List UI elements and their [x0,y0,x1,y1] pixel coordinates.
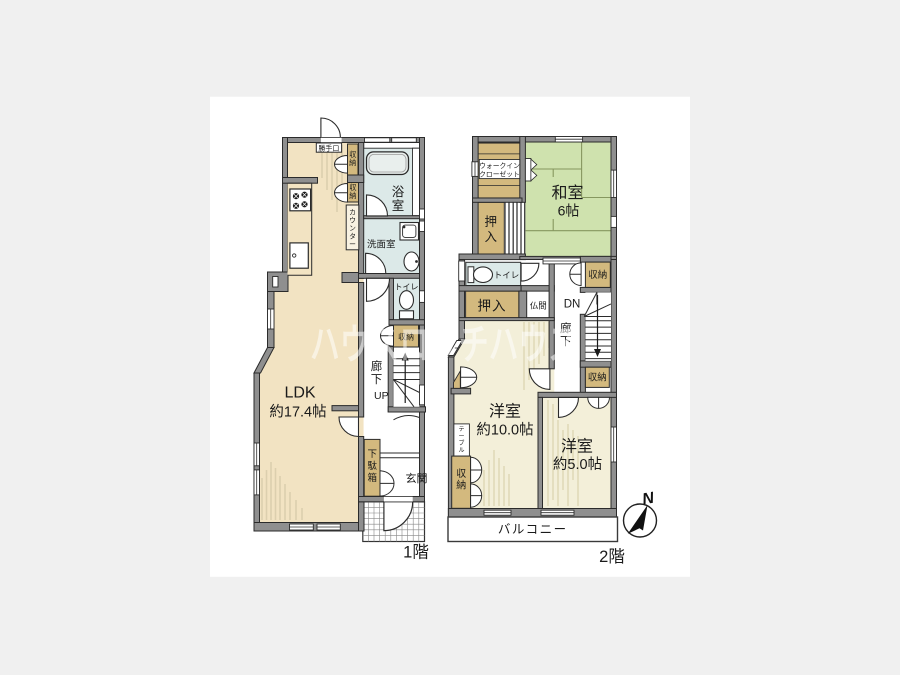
svg-text:6帖: 6帖 [558,203,580,219]
svg-text:収納: 収納 [349,150,356,167]
svg-text:トイレ: トイレ [395,283,419,292]
svg-text:押入: 押入 [478,299,507,314]
svg-text:玄関: 玄関 [406,471,428,485]
svg-text:ウォークイン: ウォークイン [479,162,520,170]
svg-text:押入: 押入 [485,215,498,244]
svg-text:収納: 収納 [456,468,466,492]
svg-text:洋室: 洋室 [489,403,521,421]
svg-text:1階: 1階 [403,543,429,562]
svg-text:収納: 収納 [588,372,607,384]
svg-text:UP: UP [374,390,389,402]
svg-text:下駄箱: 下駄箱 [368,449,378,484]
svg-text:収納: 収納 [349,183,356,200]
svg-text:カウンター: カウンター [349,209,356,249]
svg-text:洋室: 洋室 [561,438,593,456]
svg-text:DN: DN [564,299,581,311]
svg-text:仏間: 仏間 [530,301,547,311]
svg-text:和室: 和室 [551,184,583,202]
svg-text:浴室: 浴室 [392,185,405,213]
svg-text:収納: 収納 [588,269,607,281]
svg-text:トイレ: トイレ [494,270,520,280]
svg-text:勝手口: 勝手口 [318,144,339,153]
svg-text:クローゼット: クローゼット [479,170,520,179]
svg-text:2階: 2階 [599,547,625,566]
svg-text:バルコニー: バルコニー [498,523,568,537]
svg-text:LDK: LDK [284,385,315,402]
svg-text:洗面室: 洗面室 [367,239,396,251]
svg-text:約5.0帖: 約5.0帖 [553,456,602,473]
svg-text:約10.0帖: 約10.0帖 [476,422,533,439]
svg-text:約17.4帖: 約17.4帖 [269,404,326,421]
svg-text:ハウスロッチハウス: ハウスロッチハウス [310,321,578,368]
